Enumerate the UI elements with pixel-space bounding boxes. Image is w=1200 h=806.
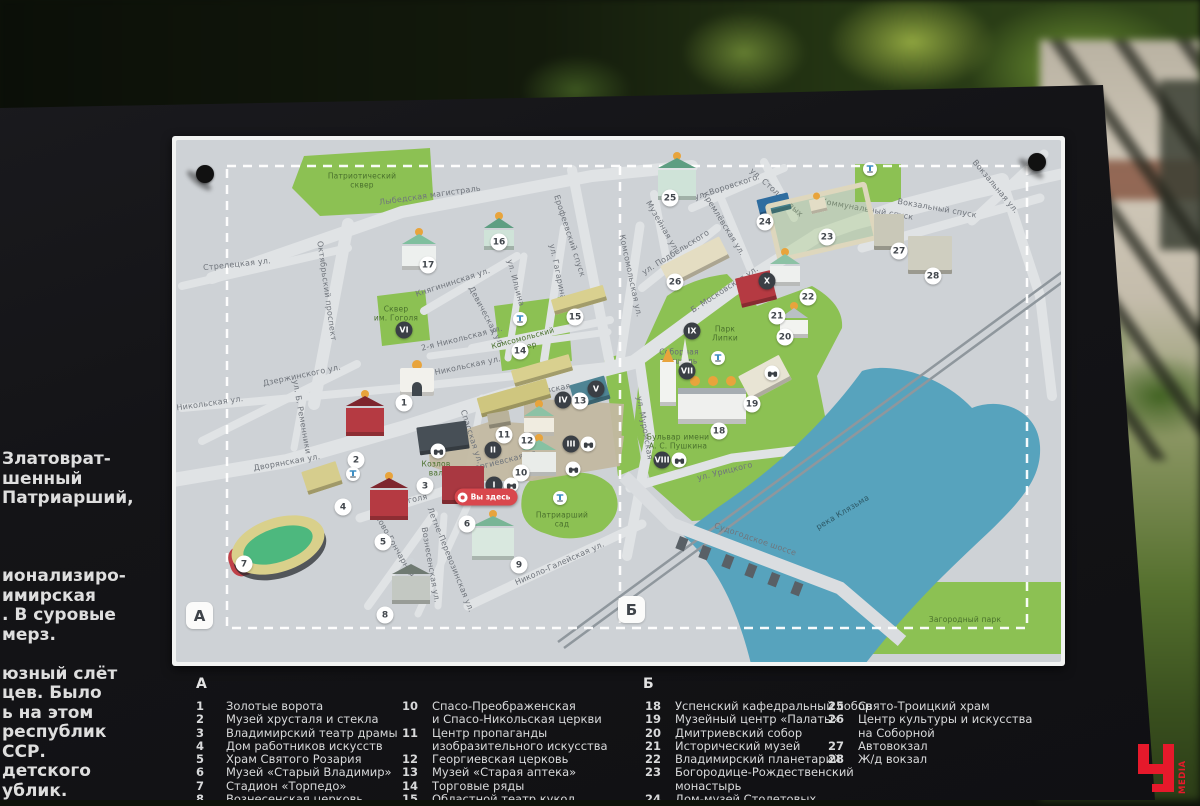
bell-tower: [660, 360, 676, 406]
map-marker-20[interactable]: 20: [777, 329, 794, 346]
map-marker-14[interactable]: 14: [512, 343, 529, 360]
rosary-church-5: [370, 472, 408, 520]
fountain-icon: [863, 162, 877, 176]
board-side-text: Златоврат- шенный Патриарший, ионализиро…: [2, 450, 134, 801]
street-label: Дзержинского ул.: [262, 364, 342, 389]
street-label: ул. Б. Ременники: [290, 379, 311, 454]
legend-item-text: Исторический музей: [675, 740, 800, 753]
legend-item-text: Музей «Старая аптека»: [432, 766, 576, 779]
legend-item-11: 11Центр пропаганды изобразительного иску…: [402, 727, 608, 754]
viewpoint-icon: [431, 444, 446, 459]
map-marker-9[interactable]: 9: [511, 557, 528, 574]
street-label: Вокзальная ул.: [970, 159, 1020, 216]
church-roof: [370, 478, 408, 488]
map-marker-25[interactable]: 25: [662, 190, 679, 207]
map-marker-22[interactable]: 22: [800, 289, 817, 306]
legend-item-10: 10Спасо-Преображенская и Спасо-Никольска…: [402, 700, 608, 727]
legend-item-25: 25Свято-Троицкий храм: [828, 700, 1032, 713]
logo-letter-stroke: [1163, 744, 1174, 792]
legend-item-number: 12: [402, 753, 432, 766]
map-marker-28[interactable]: 28: [925, 268, 942, 285]
legend-item-text: Владимирский планетарий: [675, 753, 841, 766]
legend-item-3: 3Владимирский театр драмы: [196, 727, 398, 740]
map-marker-11[interactable]: 11: [496, 427, 513, 444]
stadium-torpedo-7: [224, 504, 332, 585]
legend-item-text: Богородице-Рождественский монастырь: [675, 766, 854, 793]
park-label: Парк Липки: [712, 326, 738, 343]
legend-item-number: 10: [402, 700, 432, 727]
church-8: [392, 558, 430, 604]
map-marker-18[interactable]: 18: [711, 423, 728, 440]
fountain-icon: [553, 491, 567, 505]
viewpoint-icon: [672, 453, 687, 468]
legend-item-number: 6: [196, 766, 226, 779]
building-4: [301, 461, 343, 495]
street-label: Стрелецкая ул.: [203, 257, 272, 273]
legend-item-4: 4Дом работников искусств: [196, 740, 398, 753]
cathedral-dome: [708, 376, 718, 386]
mounting-pin: [196, 165, 214, 183]
church-roof: [484, 218, 514, 228]
roman-badge-IV[interactable]: IV: [555, 392, 572, 409]
map-section-label-Б: Б: [618, 596, 645, 623]
legend-header-А: А: [196, 676, 207, 692]
church-body: [472, 528, 514, 560]
cathedral-dome: [726, 376, 736, 386]
legend-item-number: 5: [196, 753, 226, 766]
church-body: [392, 576, 430, 604]
church-roof: [472, 516, 514, 526]
legend-item-5: 5Храм Святого Розария: [196, 753, 398, 766]
legend-item-text: Георгиевская церковь: [432, 753, 568, 766]
legend-item-number: 20: [645, 727, 675, 740]
church-body: [346, 408, 384, 436]
legend-item-text: Автовокзал: [858, 740, 928, 753]
street-label: ул. Гагарина: [547, 243, 567, 300]
map-marker-12[interactable]: 12: [519, 433, 536, 450]
legend-item-number: 18: [645, 700, 675, 713]
street-label: Никольская ул.: [176, 395, 244, 413]
legend-item-text: Торговые ряды: [432, 780, 524, 793]
church-12: [524, 400, 554, 436]
roman-badge-VI[interactable]: VI: [396, 322, 413, 339]
street-label: Николо-Галейская ул.: [514, 540, 606, 587]
map-marker-23[interactable]: 23: [819, 229, 836, 246]
fountain-icon: [513, 312, 527, 326]
legend-item-text: Центр культуры и искусства на Соборной: [858, 713, 1032, 740]
park-label: Бульвар имени А. С. Пушкина: [647, 434, 709, 451]
street-label: Судогодское шоссе: [713, 522, 797, 558]
legend-item-27: 27Автовокзал: [828, 740, 1032, 753]
viewpoint-icon: [566, 462, 581, 477]
viewpoint-icon: [765, 366, 780, 381]
map-marker-24[interactable]: 24: [757, 214, 774, 231]
street-label: Октябрьский проспект: [315, 241, 337, 342]
crystal-museum-2: [346, 390, 384, 436]
fountain-icon: [711, 351, 725, 365]
map-section-label-А: А: [186, 602, 213, 629]
map-marker-16[interactable]: 16: [491, 234, 508, 251]
assumption-cathedral-18: [664, 372, 748, 424]
legend-item-text: Владимирский театр драмы: [226, 727, 398, 740]
fountain-icon: [346, 467, 360, 481]
legend-item-2: 2Музей хрусталя и стекла: [196, 713, 398, 726]
church-roof: [524, 406, 554, 416]
legend-item-6: 6Музей «Старый Владимир»: [196, 766, 398, 779]
legend-item-number: 21: [645, 740, 675, 753]
map-marker-1[interactable]: 1: [396, 395, 413, 412]
street-label: ул. Ильина: [505, 259, 526, 308]
map-marker-2[interactable]: 2: [348, 452, 365, 469]
legend-item-text: Музейный центр «Палаты»: [675, 713, 840, 726]
legend-item-26: 26Центр культуры и искусства на Соборной: [828, 713, 1032, 740]
gate-arch: [412, 382, 422, 396]
building-11: [487, 410, 511, 429]
park-label: Патриотический сквер: [328, 173, 396, 190]
map-marker-4[interactable]: 4: [335, 499, 352, 516]
street-label: ул. Урицкого: [696, 461, 753, 483]
legend-item-number: 11: [402, 727, 432, 754]
park-label: Загородный парк: [929, 616, 1001, 625]
legend-item-14: 14Торговые ряды: [402, 780, 608, 793]
roman-badge-VIII[interactable]: VIII: [654, 452, 671, 469]
logo-word: MEDIA: [1178, 744, 1190, 794]
map-marker-15[interactable]: 15: [567, 309, 584, 326]
you-are-here-pill[interactable]: Вы здесь: [455, 489, 518, 506]
legend-item-number: 23: [645, 766, 675, 793]
legend-item-number: 19: [645, 713, 675, 726]
map-marker-17[interactable]: 17: [420, 257, 437, 274]
legend-item-number: 28: [828, 753, 858, 766]
legend-item-number: 7: [196, 780, 226, 793]
map-marker-5[interactable]: 5: [375, 534, 392, 551]
viewpoint-icon: [581, 437, 596, 452]
you-are-here-label: Вы здесь: [471, 493, 511, 502]
map-panel: Лыбедская магистральСтрелецкая ул.Октябр…: [172, 136, 1065, 666]
legend-item-text: Храм Святого Розария: [226, 753, 362, 766]
map-marker-21[interactable]: 21: [769, 308, 786, 325]
block-body: [487, 410, 511, 429]
legend-item-text: Ж/д вокзал: [858, 753, 927, 766]
legend-item-13: 13Музей «Старая аптека»: [402, 766, 608, 779]
legend-column: 10Спасо-Преображенская и Спасо-Никольска…: [402, 700, 608, 806]
cathedral-body: [678, 388, 746, 424]
legend-item-text: Спасо-Преображенская и Спасо-Никольская …: [432, 700, 602, 727]
legend-item-number: 3: [196, 727, 226, 740]
legend-item-number: 27: [828, 740, 858, 753]
roman-badge-X[interactable]: X: [759, 273, 776, 290]
block-body: [301, 461, 343, 495]
golden-gate-1: [400, 364, 434, 396]
church-roof: [346, 396, 384, 406]
legend-item-23: 23Богородице-Рождественский монастырь: [645, 766, 872, 793]
legend-item-text: Музей хрусталя и стекла: [226, 713, 379, 726]
legend-item-text: Золотые ворота: [226, 700, 323, 713]
obelisk: [678, 336, 692, 366]
roman-badge-II[interactable]: II: [485, 442, 502, 459]
map-marker-3[interactable]: 3: [417, 478, 434, 495]
church-body: [370, 490, 408, 520]
map-marker-19[interactable]: 19: [744, 396, 761, 413]
legend-item-number: 1: [196, 700, 226, 713]
legend-header-Б: Б: [643, 676, 654, 692]
church-roof: [770, 254, 800, 264]
street-label: Музейная ул.: [644, 200, 681, 255]
roman-badge-VII[interactable]: VII: [679, 363, 696, 380]
monument-obelisk: [681, 338, 689, 362]
roman-badge-III[interactable]: III: [563, 436, 580, 453]
legend-column: 1Золотые ворота2Музей хрусталя и стекла3…: [196, 700, 398, 806]
you-are-here-dot: [458, 492, 468, 502]
water-label: река Клязьма: [815, 494, 871, 532]
map-marker-13[interactable]: 13: [572, 393, 589, 410]
map-marker-27[interactable]: 27: [891, 243, 908, 260]
legend-item-7: 7Стадион «Торпедо»: [196, 780, 398, 793]
legend-item-text: Музей «Старый Владимир»: [226, 766, 392, 779]
map-board: Златоврат- шенный Патриарший, ионализиро…: [0, 0, 1200, 800]
legend-item-number: 4: [196, 740, 226, 753]
map-marker-26[interactable]: 26: [667, 274, 684, 291]
legend-item-12: 12Георгиевская церковь: [402, 753, 608, 766]
legend-item-text: Свято-Троицкий храм: [858, 700, 990, 713]
mounting-pin: [1028, 153, 1046, 171]
church-9: [472, 510, 514, 560]
map-marker-6[interactable]: 6: [459, 516, 476, 533]
legend-item-number: 13: [402, 766, 432, 779]
park-label: Сквер им. Гоголя: [374, 306, 418, 323]
legend-item-text: Дом работников искусств: [226, 740, 383, 753]
roman-badge-IX[interactable]: IX: [684, 323, 701, 340]
legend-item-28: 28Ж/д вокзал: [828, 753, 1032, 766]
legend-item-text: Дмитриевский собор: [675, 727, 802, 740]
church-roof: [658, 158, 696, 168]
bell-spire: [662, 348, 674, 362]
legend-item-number: 22: [645, 753, 675, 766]
map-marker-7[interactable]: 7: [236, 556, 253, 573]
legend-item-number: 2: [196, 713, 226, 726]
legend-item-text: Стадион «Торпедо»: [226, 780, 346, 793]
legend-item-number: 25: [828, 700, 858, 713]
chmedia-logo: MEDIA: [1138, 744, 1198, 800]
legend-column: 25Свято-Троицкий храм26Центр культуры и …: [828, 700, 1032, 766]
park-label: Патриарший сад: [536, 512, 588, 529]
church-roof: [392, 564, 430, 574]
church-roof: [402, 234, 436, 244]
logo-letter-stroke: [1152, 784, 1163, 792]
street-label: ул. Муромская: [634, 396, 654, 461]
roman-badge-V[interactable]: V: [588, 381, 605, 398]
map-marker-8[interactable]: 8: [377, 607, 394, 624]
legend-item-number: 14: [402, 780, 432, 793]
legend-item-number: 26: [828, 713, 858, 740]
legend-item-text: Центр пропаганды изобразительного искусс…: [432, 727, 608, 754]
legend-item-1: 1Золотые ворота: [196, 700, 398, 713]
street-label: Комсомольская ул.: [617, 234, 643, 318]
